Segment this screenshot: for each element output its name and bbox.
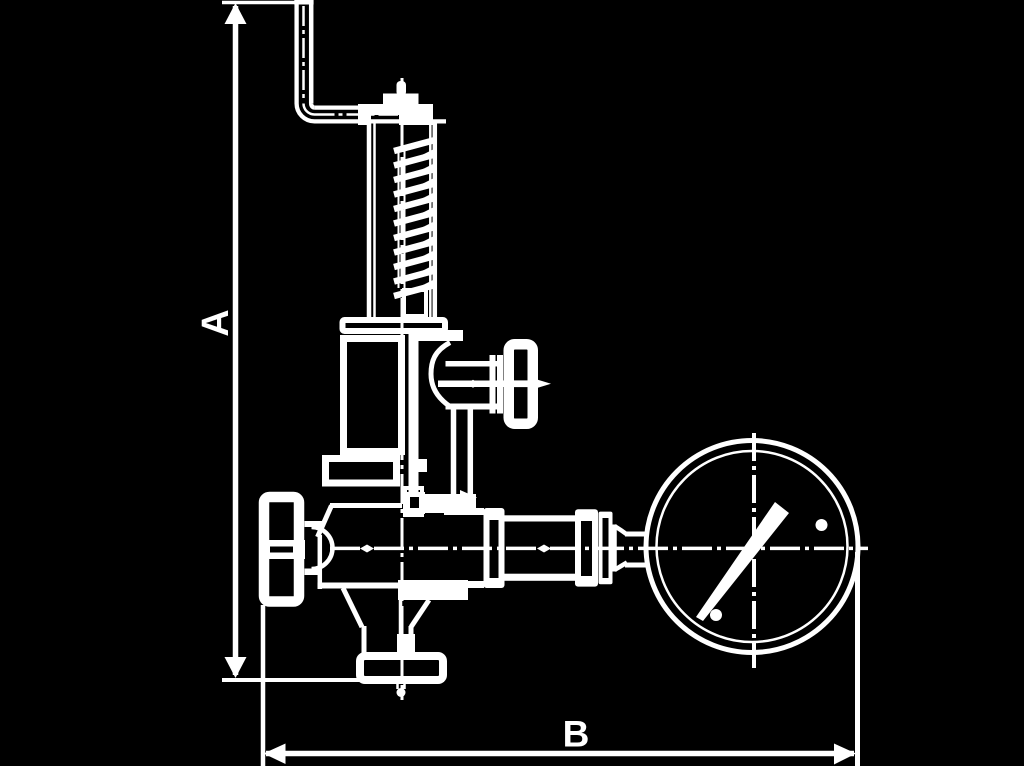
svg-text:B: B	[563, 714, 590, 755]
svg-text:A: A	[195, 309, 237, 336]
